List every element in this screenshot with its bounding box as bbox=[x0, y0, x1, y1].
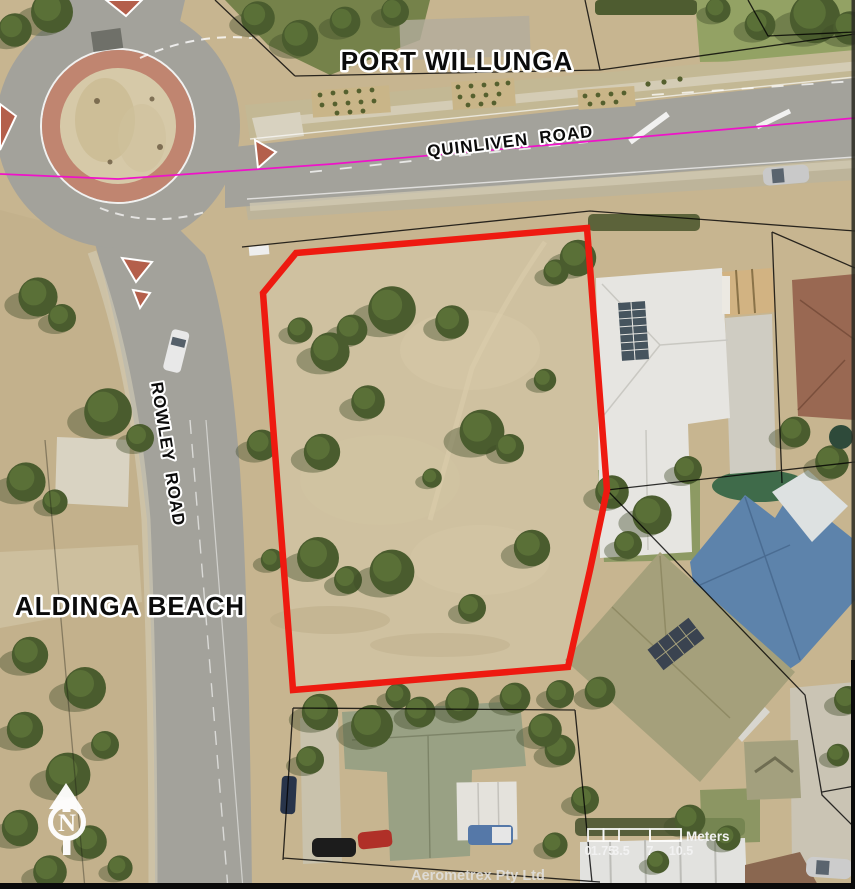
car-silver-2 bbox=[805, 856, 852, 879]
car-red bbox=[357, 829, 393, 849]
suburb-label-aldinga-beach: ALDINGA BEACH bbox=[15, 591, 245, 621]
scale-tick-4: 10.5 bbox=[669, 844, 693, 858]
car-blue-ute bbox=[468, 825, 513, 845]
map-border-bar bbox=[0, 883, 855, 889]
map-canvas: PORT WILLUNGA ALDINGA BEACH QUINLIVEN RO… bbox=[0, 0, 855, 889]
solar-panels bbox=[618, 301, 649, 361]
scale-tick-2: 3.5 bbox=[612, 844, 629, 858]
aerial-basemap bbox=[0, 0, 855, 889]
scale-unit-label: Meters bbox=[686, 829, 730, 844]
shed-white bbox=[249, 245, 270, 256]
car-black bbox=[312, 838, 356, 857]
north-arrow-shaft bbox=[63, 839, 71, 855]
north-arrow-letter: N bbox=[58, 810, 76, 837]
trampoline bbox=[829, 425, 853, 449]
garage-tan-roof bbox=[722, 268, 776, 316]
map-edge-right-dark bbox=[851, 660, 855, 889]
house-brown-roof bbox=[792, 274, 855, 420]
attribution-text: Aerometrex Pty Ltd bbox=[411, 868, 545, 884]
scale-tick-3: 7 bbox=[647, 844, 654, 858]
suburb-label-port-willunga: PORT WILLUNGA bbox=[341, 46, 574, 76]
